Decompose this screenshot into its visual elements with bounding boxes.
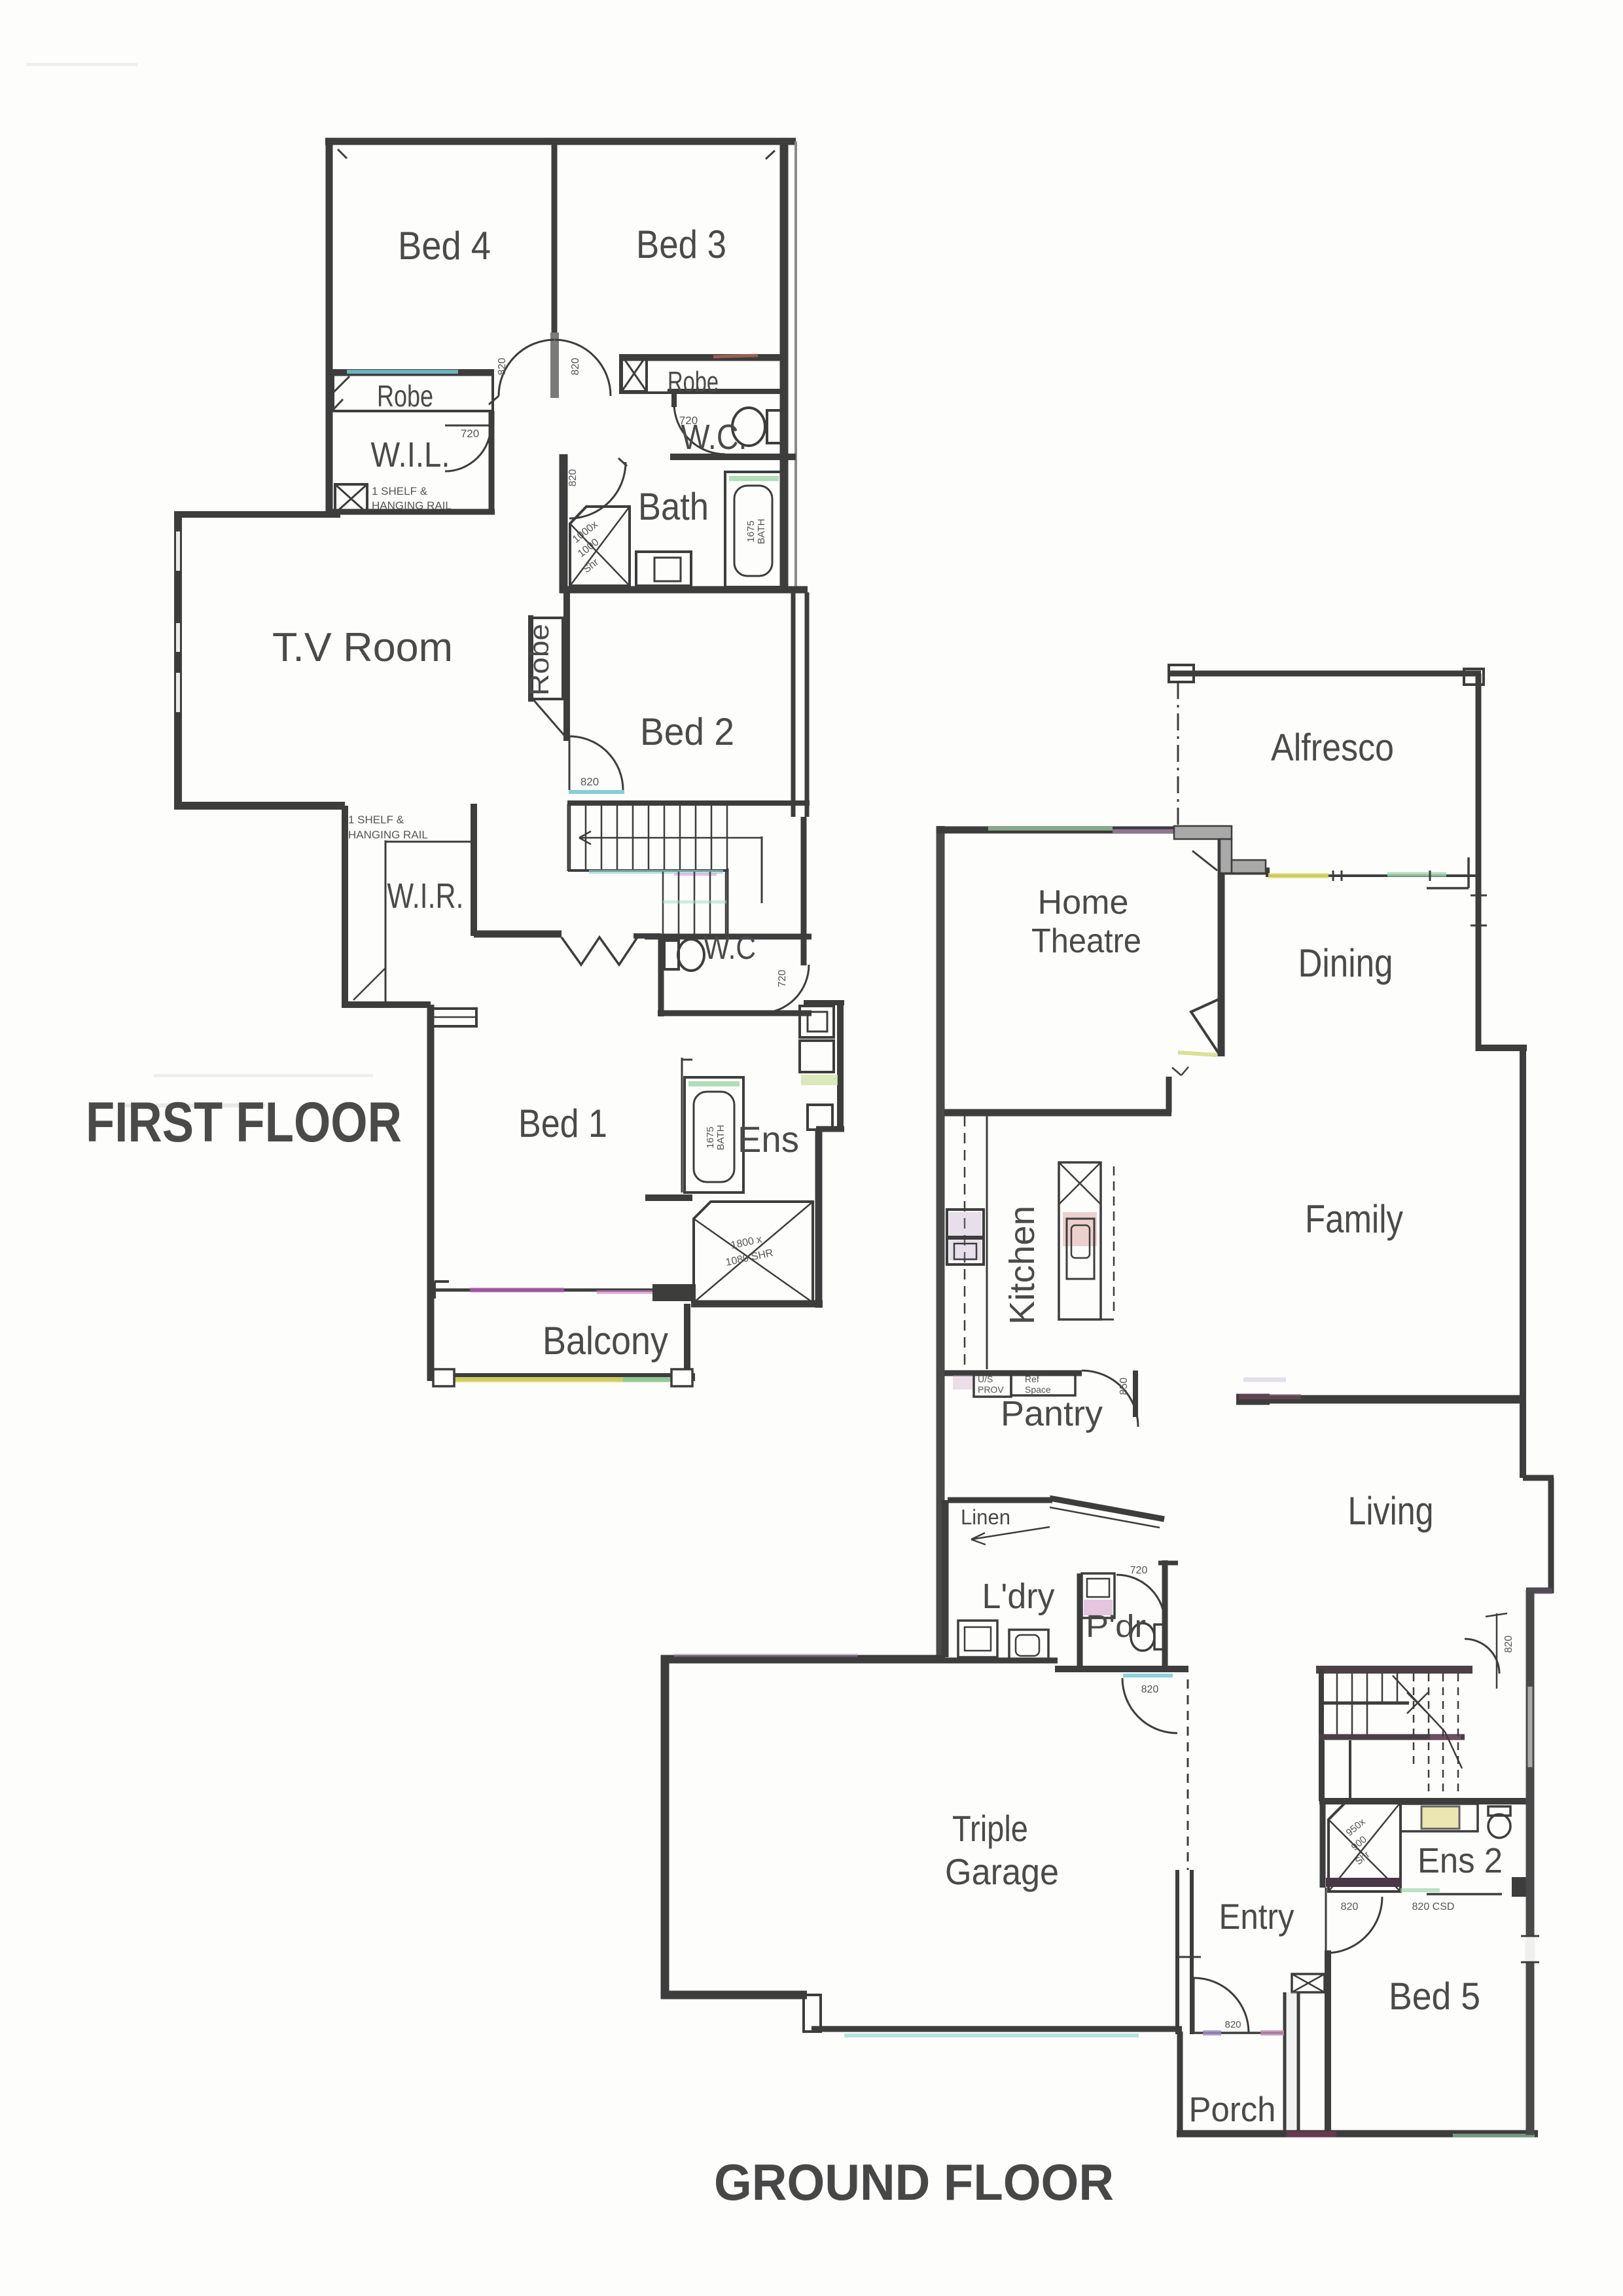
svg-text:Ref: Ref <box>1025 1374 1039 1384</box>
svg-text:Ens 2: Ens 2 <box>1418 1841 1503 1880</box>
svg-text:Robe: Robe <box>668 366 719 398</box>
svg-text:GROUND FLOOR: GROUND FLOOR <box>714 2153 1114 2211</box>
svg-text:720: 720 <box>461 427 479 440</box>
svg-text:Entry: Entry <box>1219 1896 1294 1937</box>
svg-text:Living: Living <box>1348 1489 1434 1533</box>
svg-text:W.I.L.: W.I.L. <box>371 435 450 475</box>
svg-text:Dining: Dining <box>1298 941 1393 985</box>
svg-text:Family: Family <box>1305 1197 1403 1241</box>
svg-text:Robe: Robe <box>377 379 433 413</box>
svg-text:850: 850 <box>1118 1378 1130 1395</box>
svg-text:820: 820 <box>1224 2019 1241 2030</box>
svg-text:Balcony: Balcony <box>543 1319 668 1363</box>
svg-text:HANGING RAIL: HANGING RAIL <box>372 499 452 512</box>
svg-text:820: 820 <box>1341 1901 1359 1912</box>
svg-text:Bed 2: Bed 2 <box>640 711 734 753</box>
svg-text:820: 820 <box>580 776 599 788</box>
svg-text:Bed 4: Bed 4 <box>398 224 491 268</box>
svg-text:Space: Space <box>1025 1384 1051 1395</box>
svg-text:Triple: Triple <box>952 1808 1028 1849</box>
svg-text:1675: 1675 <box>705 1126 716 1148</box>
svg-text:1 SHELF &: 1 SHELF & <box>348 814 404 826</box>
svg-text:Theatre: Theatre <box>1031 922 1141 960</box>
svg-text:Bath: Bath <box>638 486 709 528</box>
svg-text:820: 820 <box>567 469 579 487</box>
svg-text:Ens: Ens <box>738 1119 799 1160</box>
svg-text:820: 820 <box>497 358 508 376</box>
svg-text:720: 720 <box>1130 1565 1148 1576</box>
svg-text:Pantry: Pantry <box>1001 1394 1103 1433</box>
svg-text:Bed 1: Bed 1 <box>518 1102 607 1145</box>
svg-text:L'dry: L'dry <box>982 1577 1055 1616</box>
svg-text:Garage: Garage <box>945 1851 1059 1892</box>
svg-text:Alfresco: Alfresco <box>1271 726 1394 769</box>
svg-text:BATH: BATH <box>715 1125 726 1151</box>
svg-text:1675: 1675 <box>745 520 757 542</box>
svg-text:Home: Home <box>1038 884 1129 922</box>
svg-text:BATH: BATH <box>756 519 767 545</box>
svg-text:W.I.R.: W.I.R. <box>387 876 464 916</box>
svg-text:Linen: Linen <box>961 1505 1010 1529</box>
svg-text:820: 820 <box>1503 1636 1514 1653</box>
svg-text:U/S: U/S <box>978 1374 993 1384</box>
svg-text:720: 720 <box>679 414 698 427</box>
svg-text:Porch: Porch <box>1189 2090 1276 2129</box>
svg-text:720: 720 <box>777 970 788 988</box>
svg-text:Kitchen: Kitchen <box>1003 1206 1042 1325</box>
svg-text:Robe: Robe <box>524 624 554 696</box>
svg-text:1 SHELF &: 1 SHELF & <box>372 485 428 497</box>
svg-text:Bed 5: Bed 5 <box>1389 1975 1480 2018</box>
svg-text:820: 820 <box>1141 1684 1159 1695</box>
svg-text:HANGING RAIL: HANGING RAIL <box>348 829 428 841</box>
svg-text:Bed 3: Bed 3 <box>636 223 726 266</box>
svg-text:FIRST FLOOR: FIRST FLOOR <box>86 1091 402 1154</box>
svg-text:820: 820 <box>570 358 581 376</box>
svg-text:820 CSD: 820 CSD <box>1412 1901 1455 1912</box>
svg-text:P'dr: P'dr <box>1086 1609 1146 1644</box>
svg-text:W.C: W.C <box>704 929 756 966</box>
svg-text:T.V Room: T.V Room <box>272 625 453 670</box>
svg-text:PROV: PROV <box>978 1384 1004 1395</box>
